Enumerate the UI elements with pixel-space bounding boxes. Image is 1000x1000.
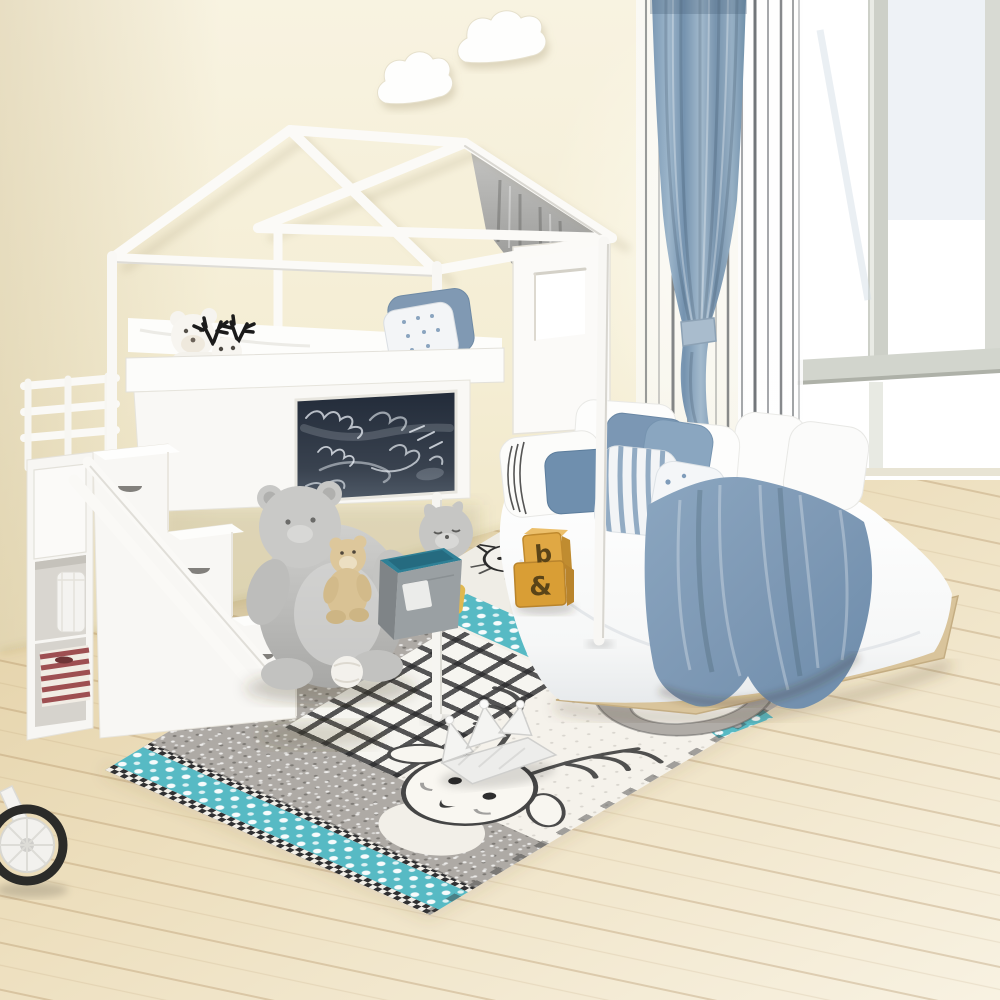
block-letter-bottom: & — [528, 571, 552, 602]
bedroom-photo: b & — [0, 0, 1000, 1000]
cube-label — [402, 580, 432, 611]
loft-guardrail — [24, 256, 116, 474]
cubby-canister — [57, 572, 85, 632]
floor-blanket — [645, 477, 872, 709]
felt-storage-cube — [378, 548, 462, 640]
plush-ball — [331, 656, 363, 688]
tricycle-wheel — [0, 786, 68, 898]
loft-bed — [126, 266, 504, 512]
furniture-layer: b & — [0, 0, 1000, 1000]
striped-basket — [40, 645, 90, 707]
crown-cushion — [432, 693, 559, 793]
block-letter-top: b — [534, 539, 554, 568]
alphabet-blocks: b & — [514, 528, 575, 615]
